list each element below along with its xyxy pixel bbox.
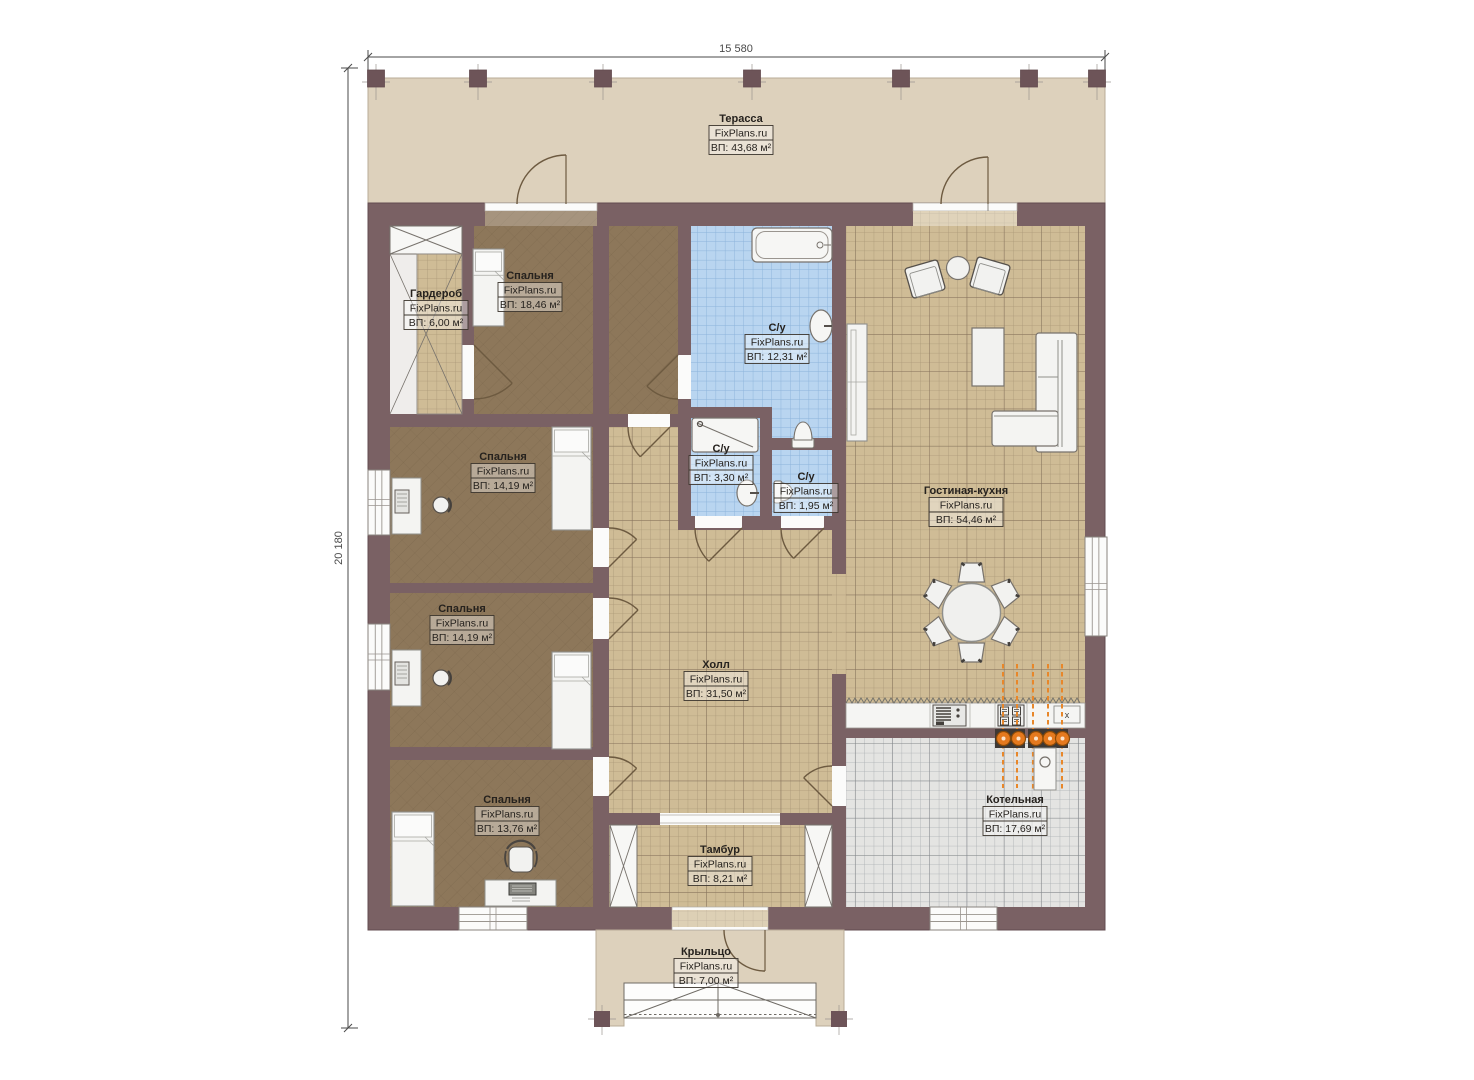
svg-text:ВП: 17,69 м²: ВП: 17,69 м² (985, 823, 1046, 835)
svg-text:ВП: 14,19 м²: ВП: 14,19 м² (432, 632, 493, 644)
svg-text:FixPlans.ru: FixPlans.ru (695, 458, 748, 470)
svg-text:С/у: С/у (768, 322, 786, 334)
svg-text:Гардероб: Гардероб (410, 288, 462, 300)
svg-text:Котельная: Котельная (986, 794, 1044, 806)
svg-text:20 180: 20 180 (333, 531, 345, 565)
svg-text:С/у: С/у (712, 443, 730, 455)
svg-text:Спальня: Спальня (438, 603, 486, 615)
svg-text:FixPlans.ru: FixPlans.ru (751, 337, 804, 349)
svg-text:С/у: С/у (797, 471, 815, 483)
svg-text:ВП: 43,68 м²: ВП: 43,68 м² (711, 142, 772, 154)
svg-text:ВП: 7,00 м²: ВП: 7,00 м² (679, 975, 734, 987)
svg-text:FixPlans.ru: FixPlans.ru (481, 809, 534, 821)
svg-text:ВП: 18,46 м²: ВП: 18,46 м² (500, 299, 561, 311)
svg-text:Спальня: Спальня (479, 451, 527, 463)
svg-text:FixPlans.ru: FixPlans.ru (940, 500, 993, 512)
svg-text:FixPlans.ru: FixPlans.ru (694, 859, 747, 871)
svg-text:ВП: 3,30 м²: ВП: 3,30 м² (694, 472, 749, 484)
svg-text:Терасса: Терасса (719, 113, 763, 125)
svg-text:Гостиная-кухня: Гостиная-кухня (924, 485, 1008, 497)
svg-text:ВП: 6,00 м²: ВП: 6,00 м² (409, 317, 464, 329)
svg-text:Спальня: Спальня (483, 794, 531, 806)
svg-text:Холл: Холл (702, 659, 730, 671)
svg-text:FixPlans.ru: FixPlans.ru (436, 618, 489, 630)
svg-text:FixPlans.ru: FixPlans.ru (680, 961, 733, 973)
svg-text:FixPlans.ru: FixPlans.ru (410, 303, 463, 315)
svg-text:x: x (1065, 710, 1070, 720)
svg-text:ВП: 14,19 м²: ВП: 14,19 м² (473, 480, 534, 492)
svg-text:FixPlans.ru: FixPlans.ru (989, 809, 1042, 821)
svg-text:ВП: 31,50 м²: ВП: 31,50 м² (686, 688, 747, 700)
svg-text:FixPlans.ru: FixPlans.ru (780, 486, 833, 498)
svg-text:FixPlans.ru: FixPlans.ru (715, 128, 768, 140)
svg-text:FixPlans.ru: FixPlans.ru (690, 674, 743, 686)
svg-text:Тамбур: Тамбур (700, 844, 740, 856)
svg-text:ВП: 12,31 м²: ВП: 12,31 м² (747, 351, 808, 363)
svg-text:FixPlans.ru: FixPlans.ru (504, 285, 557, 297)
svg-text:FixPlans.ru: FixPlans.ru (477, 466, 530, 478)
svg-text:ВП: 54,46 м²: ВП: 54,46 м² (936, 514, 997, 526)
svg-text:Спальня: Спальня (506, 270, 554, 282)
svg-text:Крыльцо: Крыльцо (681, 946, 731, 958)
svg-text:ВП: 8,21 м²: ВП: 8,21 м² (693, 873, 748, 885)
svg-text:ВП: 1,95 м²: ВП: 1,95 м² (779, 500, 834, 512)
svg-text:15 580: 15 580 (719, 43, 753, 55)
svg-text:ВП: 13,76 м²: ВП: 13,76 м² (477, 823, 538, 835)
